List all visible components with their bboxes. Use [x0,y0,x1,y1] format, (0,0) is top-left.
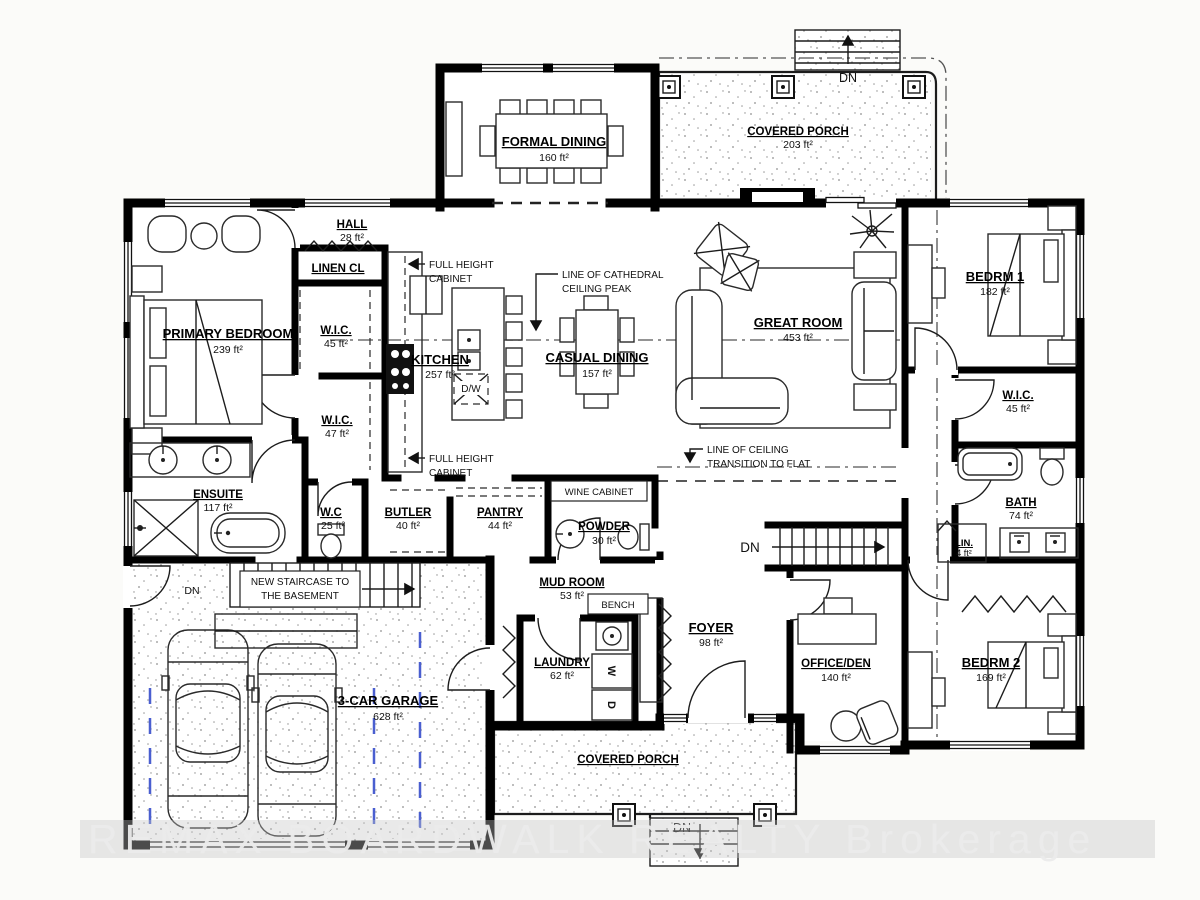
primary-bed [144,300,262,424]
sliding-door [826,197,896,209]
armchair [222,216,260,252]
stool [506,400,522,418]
opening-mud-foyer [655,560,665,598]
post [772,76,794,98]
chair [932,268,945,298]
note-text: FULL HEIGHT [429,454,494,465]
room-label-hall: HALL [337,219,368,231]
room-label-casual-dining: CASUAL DINING [545,350,648,365]
office-desk [798,614,876,644]
window [950,197,1028,209]
window [122,492,134,546]
room-area-kitchen: 257 ft² [425,369,455,381]
nightstand [1048,712,1076,734]
room-label-garage: 3-CAR GARAGE [338,693,439,708]
nightstand [132,266,162,292]
room-area-bedrm1: 182 ft² [980,286,1010,298]
watermark: REMAX BOARDWALK REALTY Brokerage [80,816,1155,862]
opening-greatroom-hall [900,448,910,498]
room-area-formal-dining: 160 ft² [539,152,569,164]
room-area-garage: 628 ft² [373,711,403,723]
laundry-fixtures: W D [592,622,632,720]
room-area-ensuite: 117 ft² [204,502,233,514]
window [165,197,250,209]
window [553,62,614,74]
room-area-office-den: 140 ft² [821,672,851,684]
note-text: CABINET [429,274,472,285]
room-label-formal-dining: FORMAL DINING [502,134,606,149]
room-label-covered-porch-top: COVERED PORCH [747,126,849,138]
bathtub [211,513,285,553]
room-area-primary-bedroom: 239 ft² [213,344,243,356]
side-table [191,223,217,249]
room-area-wc: 25 ft² [321,520,345,532]
armchair [148,216,186,252]
window [305,197,390,209]
dresser [908,245,932,323]
room-area-hall: 28 ft² [340,232,364,244]
room-area-pantry: 44 ft² [488,520,512,532]
dresser [908,652,932,728]
post [903,76,925,98]
room-label-covered-porch-bottom: COVERED PORCH [577,754,679,766]
stool [506,296,522,314]
room-label-mud-room: MUD ROOM [539,577,604,589]
accent-chair [721,253,760,292]
room-area-lin: 4 ft² [956,548,972,558]
watermark-text: REMAX BOARDWALK REALTY Brokerage [88,816,1097,862]
room-label-butler: BUTLER [385,507,432,519]
toilet-tank [1040,448,1064,459]
room-area-bedrm2: 169 ft² [976,672,1006,684]
range [386,344,414,394]
room-label-wic1: W.I.C. [320,325,351,337]
bed-1 [988,234,1064,336]
room-area-bath: 74 ft² [1009,510,1033,522]
room-label-powder: POWDER [578,521,630,533]
fireplace [740,188,815,206]
room-area-laundry: 62 ft² [550,670,574,682]
stool [506,348,522,366]
sidelight-window [664,712,686,724]
sidelight-window [754,712,776,724]
room-label-bedrm1: BEDRM 1 [966,269,1025,284]
room-label-wc: W.C [320,507,342,519]
room-label-linen: LINEN CL [311,263,364,275]
bench-label: BENCH [601,600,634,611]
room-area-wic3: 45 ft² [1006,403,1030,415]
note-text: LINE OF CEILING [707,445,789,456]
window [1074,478,1086,523]
room-label-wic2: W.I.C. [321,415,352,427]
dn-label-basement: DN [184,585,199,597]
note-text: CEILING PEAK [562,284,632,295]
note-text: TRANSITION TO FLAT [707,459,810,470]
stool [506,322,522,340]
dn-label-top: DN [839,71,857,85]
room-label-bedrm2: BEDRM 2 [962,655,1021,670]
room-label-ensuite: ENSUITE [193,489,243,501]
dw-label: D/W [461,384,481,395]
window [950,739,1030,751]
dryer-label: D [605,701,617,709]
room-area-wic1: 45 ft² [324,338,348,350]
room-label-office-den: OFFICE/DEN [801,658,871,670]
nightstand [1048,340,1076,364]
room-area-mud-room: 53 ft² [560,590,584,602]
wine-cabinet-label: WINE CABINET [565,487,634,498]
post [658,76,680,98]
buffet [446,102,462,176]
toilet-tank [640,524,649,550]
room-area-covered-porch-top: 203 ft² [783,139,813,151]
room-label-primary-bedroom: PRIMARY BEDROOM [163,326,294,341]
washer-label: W [605,666,617,677]
room-label-kitchen: KITCHEN [411,352,469,367]
stool [506,374,522,392]
dn-label-foyer: DN [740,540,760,555]
room-area-powder: 30 ft² [592,535,616,547]
porch-bottom-floor [494,722,796,814]
chair [932,678,945,706]
desk-chair [824,598,852,614]
headboard [130,296,144,428]
room-label-bath: BATH [1005,497,1036,509]
room-label-wic3: W.I.C. [1002,390,1033,402]
floor-plan-page: DN DN [0,0,1200,900]
note-text: CABINET [429,468,472,479]
end-table [854,252,896,278]
room-area-casual-dining: 157 ft² [582,368,612,380]
staircase-note-line1: NEW STAIRCASE TO [251,577,350,588]
window [482,62,543,74]
room-area-great-room: 453 ft² [783,332,813,344]
room-label-pantry: PANTRY [477,507,523,519]
room-area-butler: 40 ft² [396,520,420,532]
floor-plan-drawing: DN DN [0,0,1200,900]
room-area-wic2: 47 ft² [325,428,349,440]
room-label-great-room: GREAT ROOM [754,315,843,330]
end-table [854,384,896,410]
nightstand [1048,206,1076,230]
room-area-foyer: 98 ft² [699,637,723,649]
room-label-laundry: LAUNDRY [534,657,590,669]
note-text: LINE OF CATHEDRAL [562,270,664,281]
window [820,744,890,756]
staircase-note-line2: THE BASEMENT [261,591,339,602]
note-text: FULL HEIGHT [429,260,494,271]
sectional-sofa [676,378,788,424]
room-label-foyer: FOYER [689,620,734,635]
nightstand [1048,614,1076,636]
toilet [1041,459,1063,485]
